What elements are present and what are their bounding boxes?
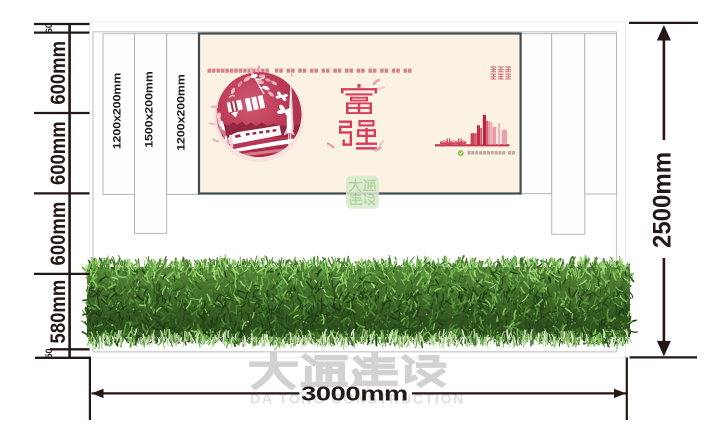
svg-text:600mm: 600mm	[47, 202, 71, 266]
svg-text:600mm: 600mm	[47, 41, 71, 105]
svg-text:2500mm: 2500mm	[649, 152, 677, 248]
svg-text:1200x200mm: 1200x200mm	[111, 73, 123, 150]
svg-text:60: 60	[44, 23, 54, 33]
svg-text:580mm: 580mm	[47, 280, 71, 344]
svg-text:600mm: 600mm	[47, 121, 71, 185]
svg-text:1500x200mm: 1500x200mm	[143, 71, 155, 148]
svg-text:50: 50	[44, 348, 54, 358]
svg-text:1200x200mm: 1200x200mm	[175, 74, 187, 151]
svg-text:3000mm: 3000mm	[301, 383, 408, 406]
